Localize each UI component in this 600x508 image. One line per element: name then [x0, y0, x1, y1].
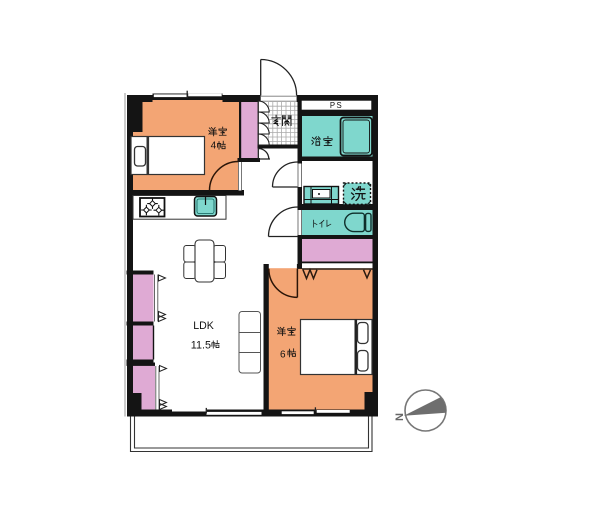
- svg-text:4: 4: [211, 141, 217, 152]
- svg-text:LDK: LDK: [193, 320, 214, 332]
- svg-text:PS: PS: [330, 101, 343, 110]
- svg-text:11.5: 11.5: [191, 339, 211, 351]
- svg-text:N: N: [394, 413, 406, 421]
- svg-text:6: 6: [280, 349, 286, 360]
